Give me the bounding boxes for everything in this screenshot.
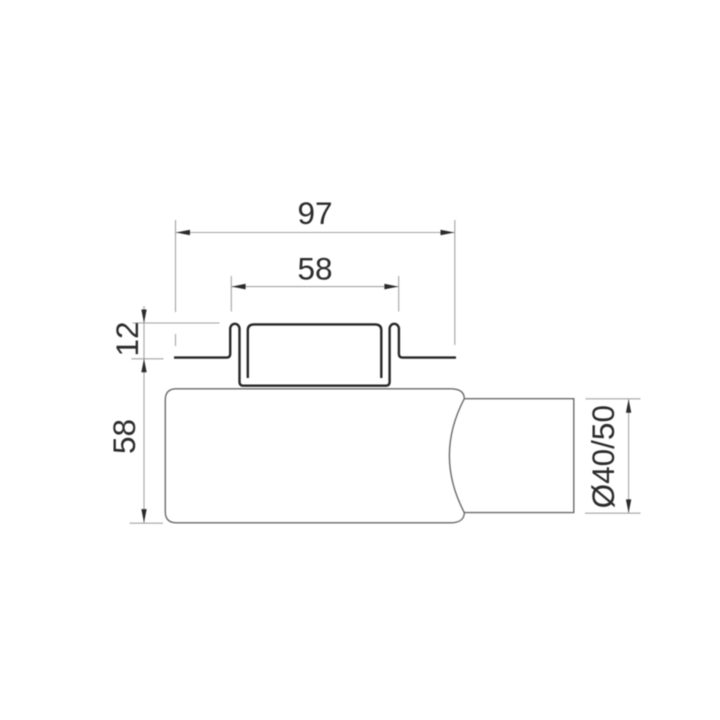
svg-text:Ø40/50: Ø40/50 [585, 405, 621, 508]
svg-text:58: 58 [297, 250, 332, 286]
svg-text:58: 58 [106, 419, 142, 454]
svg-text:97: 97 [297, 195, 332, 231]
svg-text:12: 12 [109, 321, 145, 356]
